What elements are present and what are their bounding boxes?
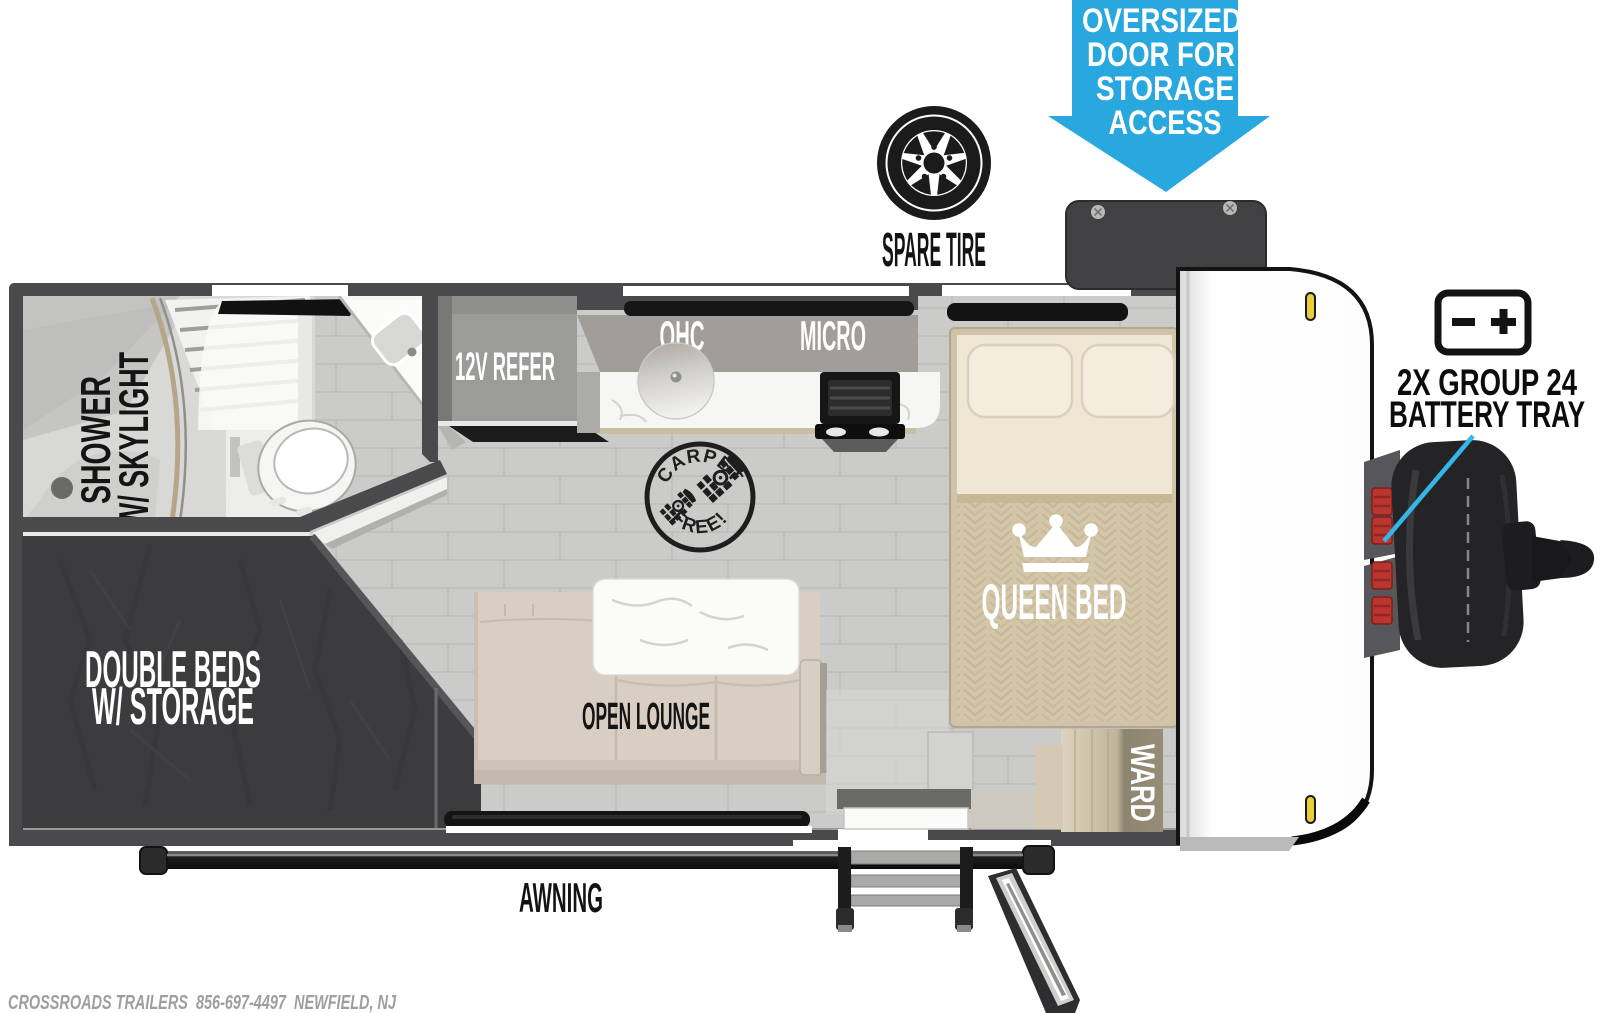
svg-text:STORAGE: STORAGE	[1096, 70, 1234, 108]
svg-text:WARD: WARD	[1123, 744, 1161, 822]
svg-text:OVERSIZED: OVERSIZED	[1082, 2, 1242, 40]
svg-text:AWNING: AWNING	[519, 874, 603, 921]
svg-text:W/ SKYLIGHT: W/ SKYLIGHT	[110, 352, 157, 528]
svg-text:BATTERY TRAY: BATTERY TRAY	[1389, 394, 1585, 435]
svg-text:QUEEN BED: QUEEN BED	[982, 574, 1127, 630]
svg-text:CROSSROADS TRAILERS 856-697-4: CROSSROADS TRAILERS 856-697-4497 NEWFIEL…	[8, 992, 397, 1013]
svg-text:12V REFER: 12V REFER	[455, 345, 555, 389]
svg-text:MICRO: MICRO	[800, 312, 866, 359]
svg-text:SPARE TIRE: SPARE TIRE	[882, 224, 986, 277]
svg-text:OPEN LOUNGE: OPEN LOUNGE	[582, 696, 710, 738]
svg-text:ACCESS: ACCESS	[1109, 104, 1222, 142]
svg-text:W/ STORAGE: W/ STORAGE	[92, 678, 254, 736]
svg-text:DOOR FOR: DOOR FOR	[1087, 36, 1235, 74]
